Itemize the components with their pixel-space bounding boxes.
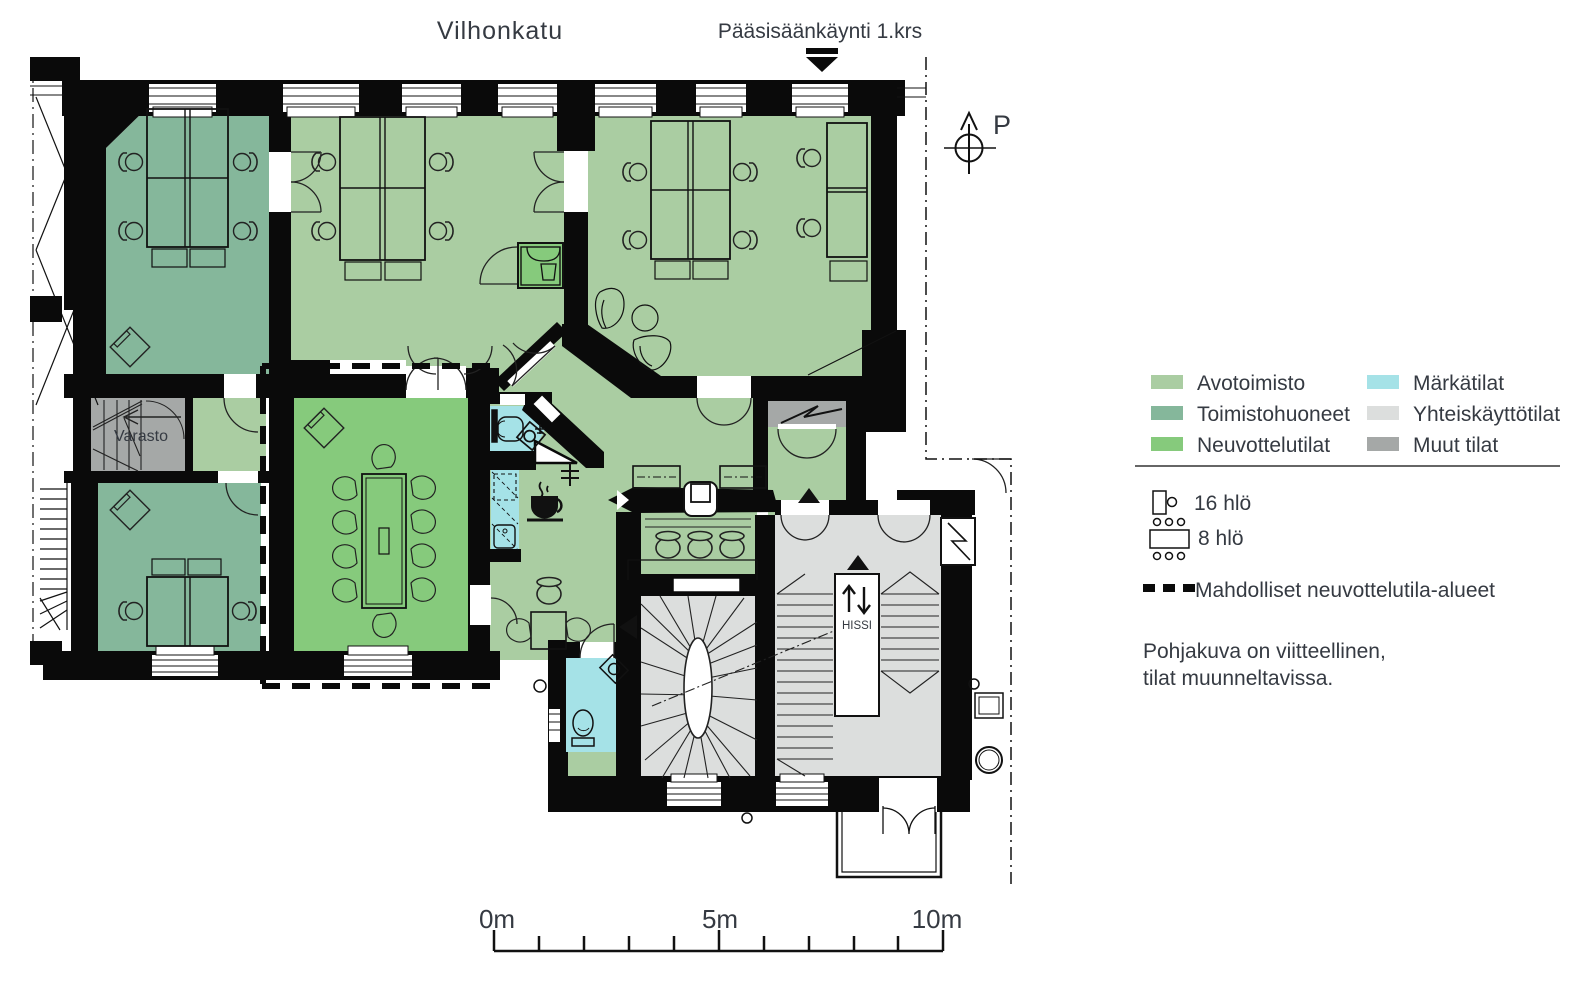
svg-text:Muut tilat: Muut tilat xyxy=(1413,434,1498,457)
svg-text:Varasto: Varasto xyxy=(114,428,168,445)
svg-text:Märkätilat: Märkätilat xyxy=(1413,372,1504,395)
svg-text:Yhteiskäyttötilat: Yhteiskäyttötilat xyxy=(1413,403,1560,426)
svg-text:Pääsisäänkäynti 1.krs: Pääsisäänkäynti 1.krs xyxy=(718,20,922,43)
svg-text:HISSI: HISSI xyxy=(842,620,872,632)
svg-text:Toimistohuoneet: Toimistohuoneet xyxy=(1197,403,1350,426)
svg-text:5m: 5m xyxy=(702,904,738,934)
svg-text:Avotoimisto: Avotoimisto xyxy=(1197,372,1305,395)
svg-text:0m: 0m xyxy=(479,904,515,934)
svg-text:tilat muunneltavissa.: tilat muunneltavissa. xyxy=(1143,667,1333,690)
svg-text:Mahdolliset neuvottelutila-alu: Mahdolliset neuvottelutila-alueet xyxy=(1195,579,1495,602)
svg-text:Vilhonkatu: Vilhonkatu xyxy=(437,17,563,45)
svg-text:Neuvottelutilat: Neuvottelutilat xyxy=(1197,434,1330,457)
svg-text:10m: 10m xyxy=(912,904,963,934)
svg-text:16 hlö: 16 hlö xyxy=(1194,492,1251,515)
svg-text:8 hlö: 8 hlö xyxy=(1198,527,1244,550)
svg-text:Pohjakuva on viitteellinen,: Pohjakuva on viitteellinen, xyxy=(1143,640,1386,663)
svg-text:P: P xyxy=(993,110,1011,140)
